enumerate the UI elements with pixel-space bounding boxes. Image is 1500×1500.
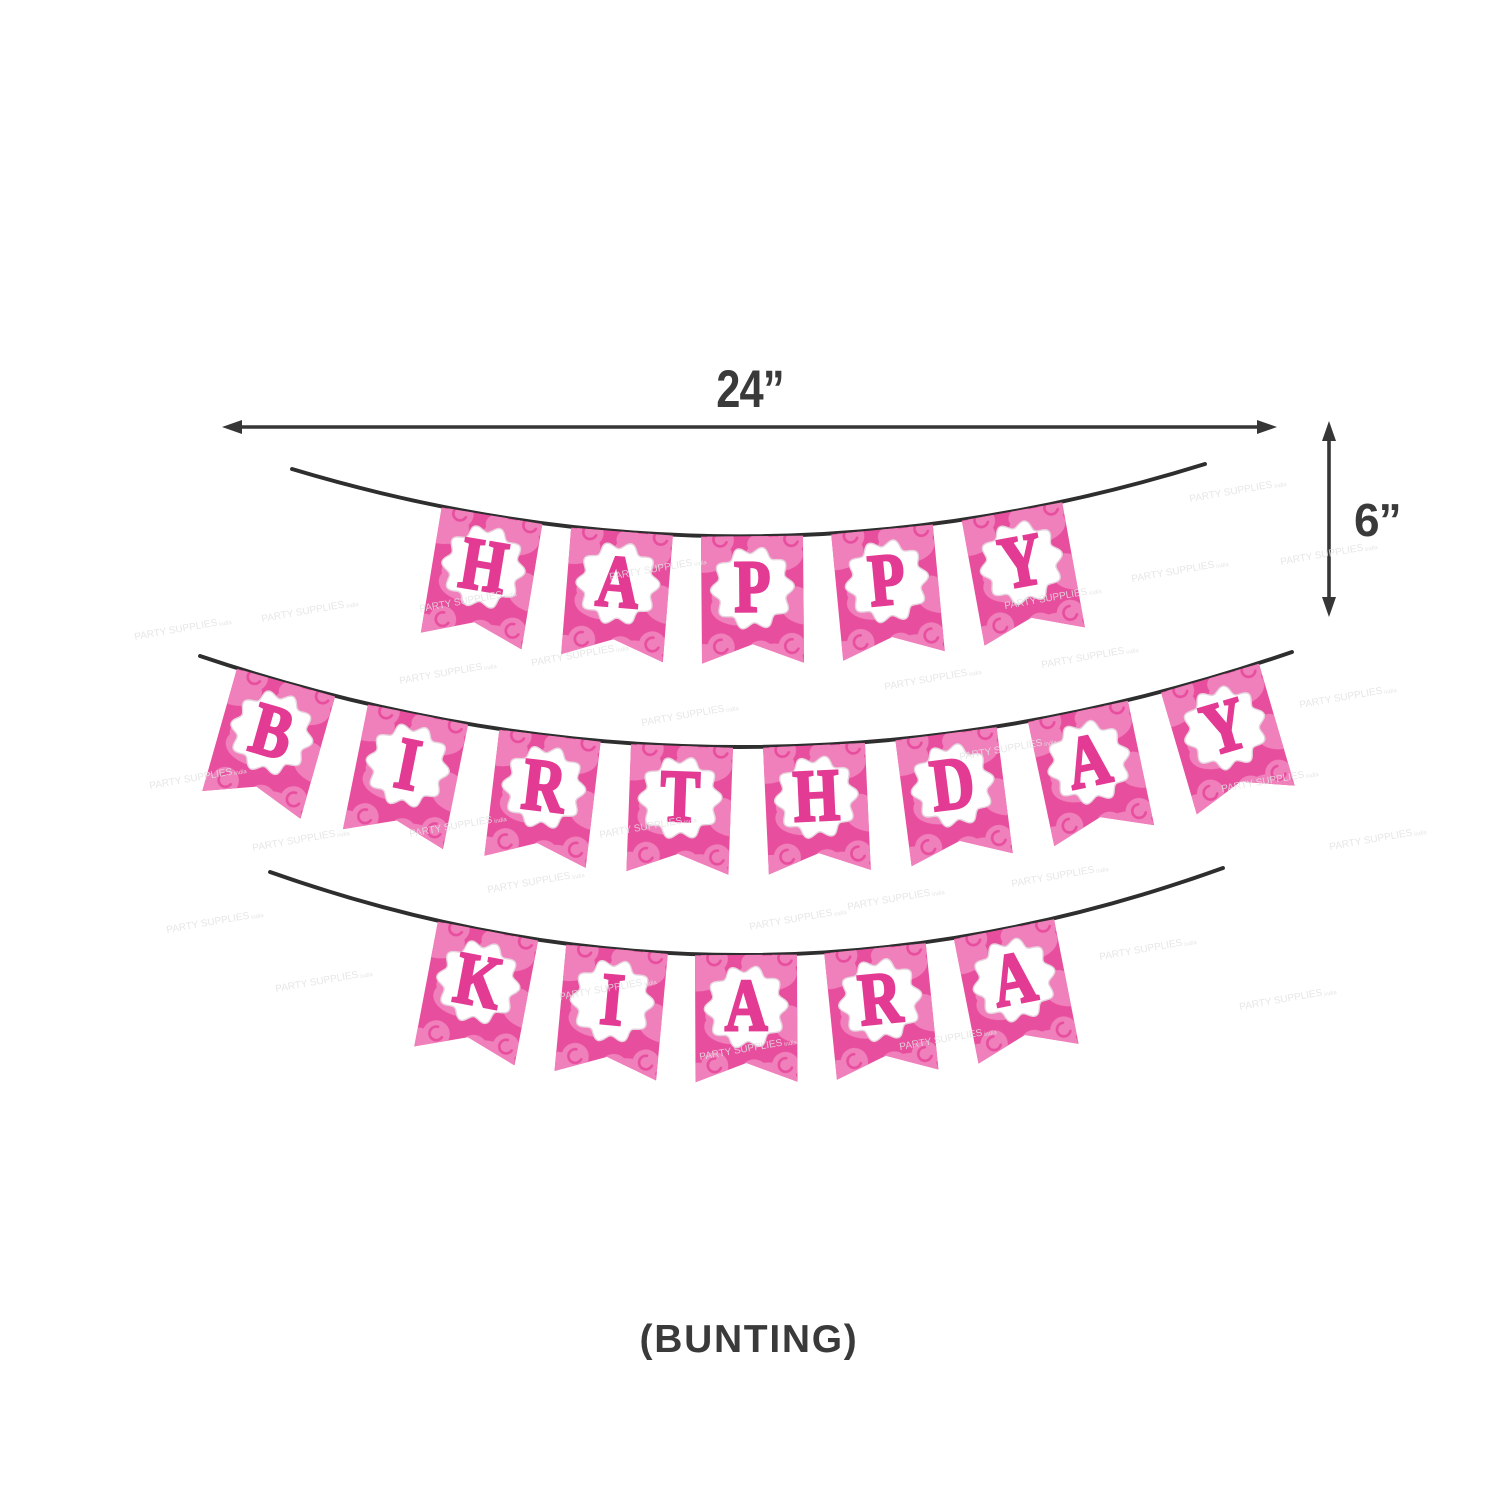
svg-text:24”: 24” bbox=[716, 360, 784, 419]
svg-text:A: A bbox=[725, 965, 768, 1047]
svg-text:6”: 6” bbox=[1354, 494, 1401, 546]
svg-text:A: A bbox=[593, 540, 642, 625]
svg-text:R: R bbox=[855, 956, 906, 1042]
svg-text:(BUNTING): (BUNTING) bbox=[640, 1318, 859, 1361]
svg-text:P: P bbox=[734, 546, 771, 628]
svg-text:P: P bbox=[865, 538, 909, 623]
svg-text:H: H bbox=[791, 754, 841, 838]
